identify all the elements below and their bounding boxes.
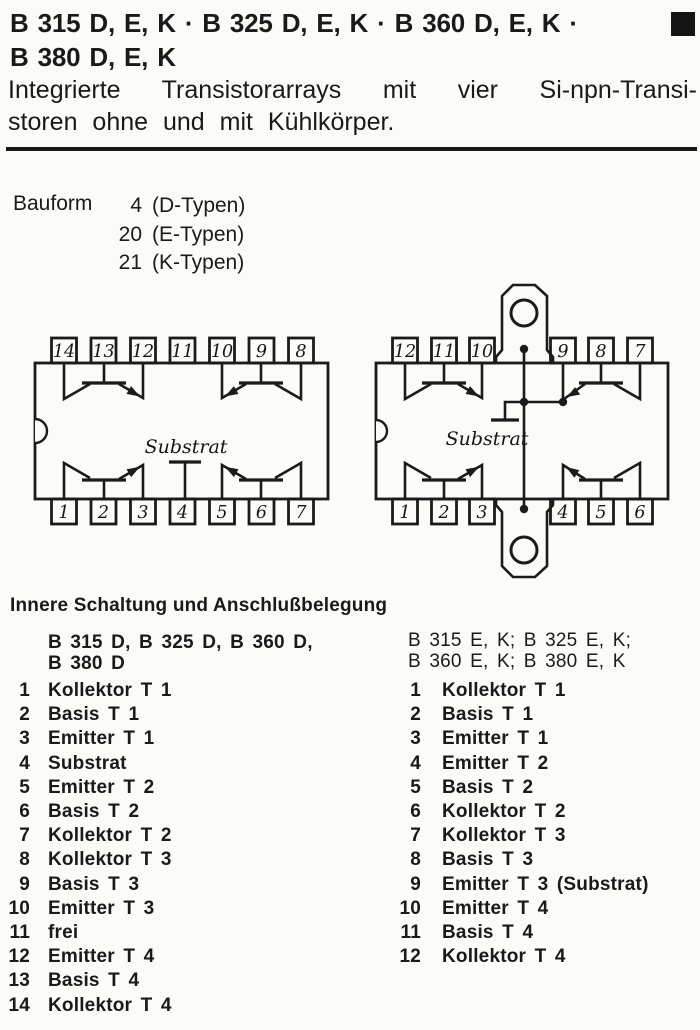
pin-function: Basis T 2 (442, 776, 533, 800)
pin-number: 12 (350, 945, 421, 969)
pin-function: frei (48, 921, 78, 945)
pin-number: 9 (0, 873, 30, 897)
datasheet-page: B 315 D, E, K · B 325 D, E, K · B 360 D,… (0, 0, 700, 1030)
pin-number: 4 (0, 752, 30, 776)
substrat-label: Substrat (446, 428, 529, 450)
pin-function: Emitter T 2 (48, 776, 154, 800)
pin-row: 3 Emitter T 1 (0, 727, 172, 751)
pin-row: 11 frei (0, 921, 172, 945)
pin-row: 5 Emitter T 2 (0, 776, 172, 800)
pin-number: 13 (0, 969, 30, 993)
pinout-left-header-line2: B 380 D (48, 654, 313, 675)
pin-function: Basis T 1 (442, 703, 533, 727)
pin-number: 2 (437, 503, 449, 523)
pin-number: 11 (0, 921, 30, 945)
pin-function: Emitter T 2 (442, 752, 548, 776)
pin-number: 10 (0, 897, 30, 921)
pin-row: 12 Kollektor T 4 (350, 945, 649, 969)
pin-number: 7 (350, 824, 421, 848)
pin-number: 14 (0, 994, 30, 1018)
pin-number: 4 (556, 503, 568, 523)
pin-number: 2 (350, 703, 421, 727)
pin-number: 11 (433, 342, 455, 362)
pinout-heading: Innere Schaltung und Anschlußbelegung (10, 595, 387, 617)
pinout-right-header-line2: B 360 E, K; B 380 E, K (408, 652, 631, 673)
d-package-diagram: 14 13 12 11 10 9 8 1 2 3 4 (35, 338, 328, 524)
pinout-list-d-types: 1 Kollektor T 1 2 Basis T 1 3 Emitter T … (0, 679, 172, 1018)
bauform-label: Bauform (13, 192, 92, 216)
pin-row: 4 Substrat (0, 752, 172, 776)
pin-row: 5 Basis T 2 (350, 776, 649, 800)
pin-function: Kollektor T 4 (442, 945, 566, 969)
pin-function: Kollektor T 3 (48, 848, 172, 872)
pin-function: Emitter T 4 (442, 897, 548, 921)
pin-number: 5 (0, 776, 30, 800)
pin-number: 1 (58, 503, 69, 523)
pin-number: 7 (634, 342, 646, 362)
pin-function: Emitter T 3 (Substrat) (442, 873, 649, 897)
index-notch (376, 420, 387, 442)
pin-number: 8 (595, 342, 606, 362)
dip14-bottom-pins: 1 2 3 4 5 6 7 (52, 499, 314, 524)
page-subtitle: Integrierte Transistorarrays mit vier Si… (8, 74, 697, 138)
pin-function: Emitter T 1 (442, 727, 548, 751)
pinout-left-header-line1: B 315 D, B 325 D, B 360 D, (48, 633, 313, 654)
bauform-type: (D-Typen) (152, 192, 245, 221)
pin-number: 12 (0, 945, 30, 969)
pin-number: 8 (295, 342, 306, 362)
pin-number: 11 (171, 342, 193, 362)
horizontal-rule (6, 147, 697, 151)
bauform-row: 20 (E-Typen) (100, 221, 245, 250)
pin-number: 3 (0, 727, 30, 751)
pin-function: Basis T 2 (48, 800, 139, 824)
pin-function: Kollektor T 3 (442, 824, 566, 848)
pin-number: 6 (256, 503, 267, 523)
pin-number: 4 (176, 503, 188, 523)
pin-function: Basis T 4 (48, 969, 139, 993)
pin-number: 5 (350, 776, 421, 800)
page-title: B 315 D, E, K · B 325 D, E, K · B 360 D,… (10, 6, 670, 74)
pin-number: 6 (350, 800, 421, 824)
pin-number: 5 (216, 503, 227, 523)
pin-number: 2 (0, 703, 30, 727)
pin-number: 10 (471, 342, 493, 362)
pin-row: 10 Emitter T 4 (350, 897, 649, 921)
pin-number: 10 (211, 342, 233, 362)
pin-function: Basis T 3 (48, 873, 139, 897)
pin-function: Emitter T 1 (48, 727, 154, 751)
pin-number: 9 (557, 342, 568, 362)
pin-number: 8 (350, 848, 421, 872)
bauform-number: 4 (100, 192, 142, 221)
pin-number: 9 (350, 873, 421, 897)
pin-row: 13 Basis T 4 (0, 969, 172, 993)
pin-number: 4 (350, 752, 421, 776)
bauform-rows: 4 (D-Typen) 20 (E-Typen) 21 (K-Typen) (100, 192, 245, 278)
pin-number: 8 (0, 848, 30, 872)
pinout-left-header: B 315 D, B 325 D, B 360 D, B 380 D (48, 633, 313, 674)
pinout-right-header-line1: B 315 E, K; B 325 E, K; (408, 631, 631, 652)
pin-row: 2 Basis T 1 (350, 703, 649, 727)
pin-function: Kollektor T 2 (442, 800, 566, 824)
pin-function: Basis T 3 (442, 848, 533, 872)
pin-number: 1 (350, 679, 421, 703)
pin-number: 3 (350, 727, 421, 751)
pinout-right-header: B 315 E, K; B 325 E, K; B 360 E, K; B 38… (408, 631, 631, 672)
pin-row: 2 Basis T 1 (0, 703, 172, 727)
pin-function: Kollektor T 1 (48, 679, 172, 703)
pin-function: Kollektor T 4 (48, 994, 172, 1018)
pin-number: 1 (0, 679, 30, 703)
title-line-1: B 315 D, E, K · B 325 D, E, K · B 360 D,… (10, 6, 670, 40)
black-square-icon (671, 12, 695, 36)
bauform-number: 20 (100, 221, 142, 250)
pin-row: 8 Basis T 3 (350, 848, 649, 872)
pin-number: 10 (350, 897, 421, 921)
pin-row: 1 Kollektor T 1 (350, 679, 649, 703)
pin-function: Kollektor T 1 (442, 679, 566, 703)
pin-function: Basis T 4 (442, 921, 533, 945)
pin-function: Basis T 1 (48, 703, 139, 727)
pinout-list-ek-types: 1 Kollektor T 1 2 Basis T 1 3 Emitter T … (350, 679, 649, 969)
pin-number: 5 (595, 503, 606, 523)
ek-package-diagram: 12 11 10 9 8 7 1 2 3 4 5 6 (376, 285, 668, 577)
pin-row: 8 Kollektor T 3 (0, 848, 172, 872)
pin-number: 3 (137, 503, 148, 523)
pin-number: 6 (0, 800, 30, 824)
pin-number: 11 (350, 921, 421, 945)
pin-number: 7 (295, 503, 307, 523)
pin-function: Emitter T 4 (48, 945, 154, 969)
pin-number: 14 (53, 342, 75, 362)
pin-row: 7 Kollektor T 3 (350, 824, 649, 848)
title-line-2: B 380 D, E, K (10, 40, 670, 74)
pin-row: 1 Kollektor T 1 (0, 679, 172, 703)
pin-row: 10 Emitter T 3 (0, 897, 172, 921)
package-diagrams: 14 13 12 11 10 9 8 1 2 3 4 (0, 270, 700, 590)
pin-row: 4 Emitter T 2 (350, 752, 649, 776)
pin-row: 3 Emitter T 1 (350, 727, 649, 751)
subtitle-line-2: storen ohne und mit Kühlkörper. (8, 106, 697, 138)
pin-row: 9 Emitter T 3 (Substrat) (350, 873, 649, 897)
dip14-body (35, 363, 328, 499)
pin-number: 13 (92, 342, 114, 362)
pin-number: 6 (634, 503, 645, 523)
pin-row: 11 Basis T 4 (350, 921, 649, 945)
pin-row: 12 Emitter T 4 (0, 945, 172, 969)
pin-row: 6 Kollektor T 2 (350, 800, 649, 824)
pin-number: 2 (97, 503, 109, 523)
pin-number: 9 (256, 342, 267, 362)
pin-row: 14 Kollektor T 4 (0, 994, 172, 1018)
pin-function: Emitter T 3 (48, 897, 154, 921)
pin-row: 9 Basis T 3 (0, 873, 172, 897)
bauform-type: (E-Typen) (152, 221, 244, 250)
pin-function: Substrat (48, 752, 127, 776)
pin-number: 7 (0, 824, 30, 848)
pin-number: 1 (399, 503, 410, 523)
bauform-row: 4 (D-Typen) (100, 192, 245, 221)
pin-row: 7 Kollektor T 2 (0, 824, 172, 848)
subtitle-line-1: Integrierte Transistorarrays mit vier Si… (8, 74, 697, 106)
substrat-label: Substrat (145, 436, 228, 458)
pin-function: Kollektor T 2 (48, 824, 172, 848)
pin-number: 12 (132, 342, 154, 362)
pin-number: 3 (476, 503, 487, 523)
pin-row: 6 Basis T 2 (0, 800, 172, 824)
dip14-top-pins: 14 13 12 11 10 9 8 (52, 338, 314, 363)
pin-number: 12 (394, 342, 416, 362)
